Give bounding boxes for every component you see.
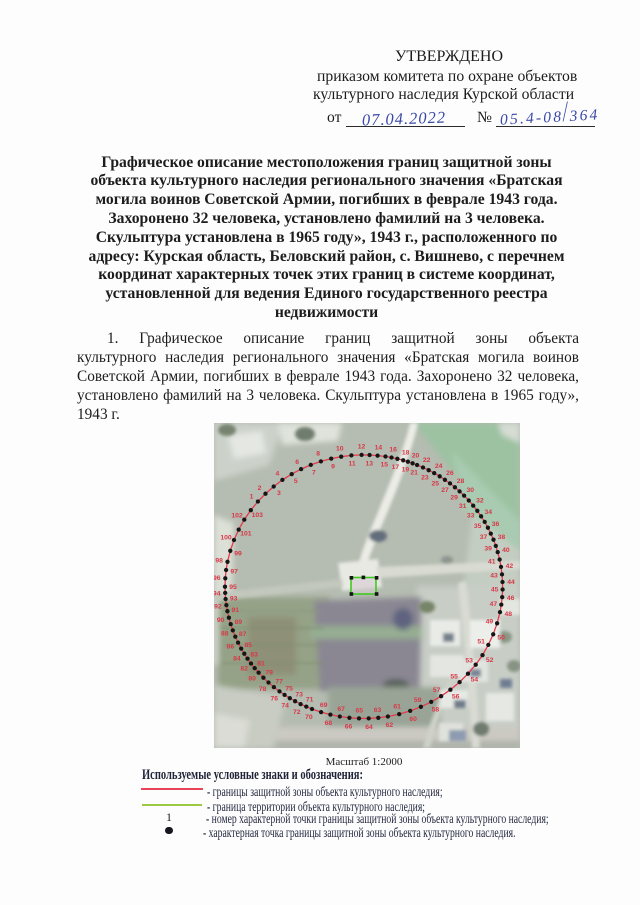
svg-text:49: 49 (486, 618, 494, 625)
svg-text:73: 73 (295, 692, 303, 699)
svg-text:18: 18 (402, 450, 410, 457)
svg-text:90: 90 (217, 617, 225, 624)
svg-text:64: 64 (365, 724, 373, 731)
svg-text:58: 58 (432, 707, 440, 714)
svg-text:98: 98 (215, 558, 223, 565)
svg-text:8: 8 (316, 451, 320, 458)
svg-text:32: 32 (476, 498, 484, 505)
svg-text:45: 45 (491, 587, 499, 594)
svg-text:51: 51 (477, 639, 485, 646)
svg-text:76: 76 (271, 696, 279, 703)
svg-text:67: 67 (337, 706, 345, 713)
svg-text:86: 86 (227, 644, 235, 651)
svg-text:71: 71 (306, 697, 314, 704)
svg-text:13: 13 (366, 460, 374, 467)
svg-text:93: 93 (230, 596, 238, 603)
svg-text:6: 6 (295, 459, 299, 466)
svg-text:37: 37 (480, 534, 488, 541)
svg-text:1: 1 (250, 493, 254, 500)
svg-text:19: 19 (402, 467, 410, 474)
svg-text:20: 20 (412, 453, 420, 460)
svg-text:91: 91 (232, 607, 240, 614)
svg-text:57: 57 (433, 687, 441, 694)
svg-text:5: 5 (294, 478, 298, 485)
svg-text:16: 16 (389, 447, 397, 454)
svg-text:79: 79 (265, 670, 273, 677)
svg-text:17: 17 (392, 464, 400, 471)
svg-text:21: 21 (410, 470, 418, 477)
svg-text:68: 68 (325, 720, 333, 727)
svg-text:30: 30 (467, 487, 475, 494)
svg-text:31: 31 (459, 503, 467, 510)
svg-text:69: 69 (320, 702, 328, 709)
svg-text:38: 38 (498, 534, 506, 541)
svg-text:95: 95 (229, 584, 237, 591)
svg-text:25: 25 (432, 480, 440, 487)
svg-text:78: 78 (259, 686, 267, 693)
svg-text:4: 4 (276, 470, 280, 477)
svg-text:55: 55 (450, 674, 458, 681)
svg-text:53: 53 (465, 657, 473, 664)
svg-text:99: 99 (234, 550, 242, 557)
svg-text:101: 101 (240, 530, 252, 537)
svg-text:75: 75 (285, 686, 293, 693)
svg-text:12: 12 (358, 444, 366, 451)
svg-text:66: 66 (345, 724, 353, 731)
svg-text:34: 34 (485, 509, 493, 516)
svg-text:88: 88 (221, 631, 229, 638)
svg-text:35: 35 (474, 523, 482, 530)
svg-text:9: 9 (331, 464, 335, 471)
svg-text:29: 29 (450, 494, 458, 501)
svg-text:74: 74 (281, 703, 289, 710)
svg-text:39: 39 (484, 546, 492, 553)
svg-text:24: 24 (435, 463, 443, 470)
svg-text:77: 77 (275, 678, 283, 685)
svg-text:41: 41 (488, 558, 496, 565)
svg-text:54: 54 (471, 677, 479, 684)
svg-text:97: 97 (230, 568, 238, 575)
svg-text:96: 96 (214, 575, 221, 582)
svg-text:23: 23 (421, 475, 429, 482)
svg-text:7: 7 (312, 470, 316, 477)
svg-text:40: 40 (502, 547, 510, 554)
svg-text:61: 61 (393, 704, 401, 711)
svg-text:85: 85 (245, 642, 253, 649)
svg-text:102: 102 (231, 513, 243, 520)
svg-text:81: 81 (257, 661, 265, 668)
svg-text:70: 70 (305, 714, 313, 721)
svg-text:56: 56 (452, 694, 460, 701)
svg-text:87: 87 (239, 631, 247, 638)
svg-text:52: 52 (486, 657, 494, 664)
svg-text:84: 84 (233, 655, 241, 662)
svg-text:42: 42 (506, 563, 514, 570)
svg-text:82: 82 (240, 666, 248, 673)
svg-text:50: 50 (497, 635, 505, 642)
svg-text:33: 33 (467, 513, 475, 520)
svg-text:26: 26 (446, 470, 454, 477)
svg-text:36: 36 (492, 521, 500, 528)
svg-text:60: 60 (409, 716, 417, 723)
svg-text:92: 92 (214, 604, 222, 611)
svg-text:44: 44 (507, 579, 515, 586)
svg-text:15: 15 (381, 462, 389, 469)
svg-text:46: 46 (507, 595, 515, 602)
svg-text:14: 14 (375, 444, 383, 451)
svg-text:63: 63 (374, 707, 382, 714)
svg-text:94: 94 (214, 591, 221, 598)
svg-text:22: 22 (423, 457, 431, 464)
svg-text:11: 11 (349, 461, 356, 468)
svg-text:27: 27 (441, 487, 449, 494)
svg-text:3: 3 (277, 490, 281, 497)
svg-text:48: 48 (505, 611, 513, 618)
svg-text:43: 43 (490, 573, 498, 580)
svg-text:89: 89 (235, 619, 243, 626)
svg-text:83: 83 (250, 652, 258, 659)
svg-text:2: 2 (258, 485, 262, 492)
svg-text:72: 72 (293, 709, 301, 716)
svg-text:62: 62 (386, 722, 394, 729)
svg-text:59: 59 (414, 697, 422, 704)
svg-text:80: 80 (248, 676, 256, 683)
svg-text:28: 28 (457, 478, 465, 485)
svg-text:100: 100 (220, 534, 232, 541)
svg-text:10: 10 (336, 446, 344, 453)
svg-text:47: 47 (490, 601, 498, 608)
svg-text:65: 65 (356, 708, 364, 715)
svg-text:103: 103 (252, 512, 264, 519)
